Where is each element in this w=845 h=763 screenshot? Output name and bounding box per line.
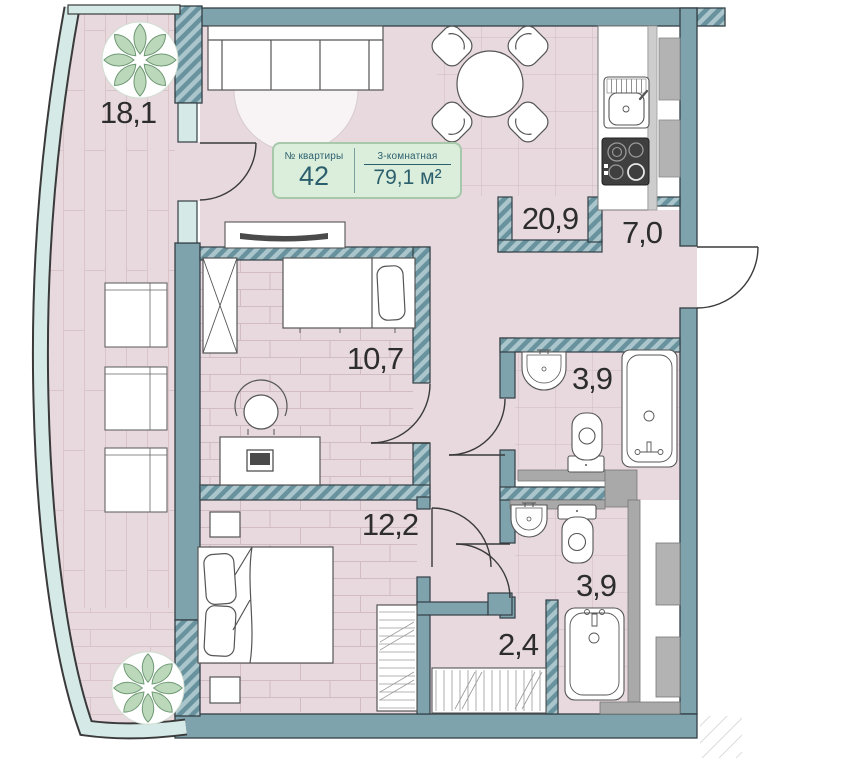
bathtub-icon (622, 350, 677, 467)
label-bedroom-small: 10,7 (347, 341, 403, 376)
label-bedroom-master: 12,2 (362, 507, 418, 542)
wall-right-lower (680, 308, 697, 714)
window-living-2 (178, 201, 197, 243)
wall-top (190, 8, 697, 26)
floor-plan-canvas: 18,1 20,9 7,0 10,7 3,9 12,2 3,9 2,4 № кв… (0, 0, 845, 763)
entrance-door (697, 247, 758, 308)
tv-stand (225, 222, 345, 248)
label-bathroom-upper: 3,9 (572, 361, 612, 396)
wall-left-solid (175, 243, 200, 620)
wall-closet-notch (488, 593, 512, 615)
grey-wall-bottom-strip (600, 702, 680, 714)
closet (432, 668, 546, 713)
apartment-number-cell: № квартиры 42 (274, 144, 354, 197)
label-bathroom-lower: 3,9 (576, 568, 616, 603)
wall-niche-bottom (498, 240, 602, 252)
fridge-cabinet-1 (659, 38, 680, 100)
grey-wall-bath-lower-right (628, 500, 640, 702)
window-living-1 (178, 103, 197, 142)
wall-bedroom-master-right-b (417, 577, 430, 714)
apartment-number-value: 42 (299, 162, 329, 190)
shaft-block-lower (656, 637, 680, 697)
double-bed (198, 547, 333, 663)
bathtub-icon (565, 608, 624, 700)
wall-right-upper (680, 8, 697, 246)
fridge-cabinet-2 (659, 120, 680, 177)
wall-bottom (175, 714, 697, 738)
dining-table (457, 51, 523, 117)
label-hallway: 7,0 (622, 215, 663, 250)
balcony-door-threshold (175, 142, 202, 201)
wall-top-corner (697, 8, 725, 26)
wall-bedroom-master-right-a (417, 497, 430, 509)
plant-icon (112, 652, 184, 724)
wall-left-pier-top (175, 6, 202, 103)
wall-bedroom-master-top (200, 485, 430, 500)
sofa (208, 26, 383, 90)
nightstand (210, 677, 240, 703)
apartment-type-label: 3-комнатная (364, 151, 451, 165)
stove-icon (602, 138, 649, 185)
wardrobe-x (203, 258, 237, 353)
balcony-box (105, 367, 167, 430)
label-living-kitchen: 20,9 (522, 201, 578, 236)
kitchen-sink-icon (604, 77, 649, 128)
pillow (204, 605, 237, 657)
label-closet: 2,4 (498, 627, 539, 662)
balcony-box (105, 283, 167, 347)
plant-icon (102, 22, 178, 98)
balcony-box (105, 448, 167, 512)
wardrobe-shelves (377, 605, 417, 711)
toilet-icon (558, 505, 596, 563)
toilet-icon (568, 413, 604, 472)
floor-plan-drawing: 18,1 20,9 7,0 10,7 3,9 12,2 3,9 2,4 (0, 0, 845, 763)
balcony-furniture (105, 283, 167, 512)
label-balcony: 18,1 (100, 95, 156, 130)
pillow (203, 553, 236, 605)
apartment-info-badge: № квартиры 42 3-комнатная 79,1 м² (272, 142, 462, 199)
wall-closet-right (546, 600, 558, 714)
washbasin-icon (522, 350, 566, 390)
single-bed (283, 258, 415, 333)
wall-bath-lower-top (500, 487, 610, 500)
desk (220, 437, 320, 485)
apartment-area-cell: 3-комнатная 79,1 м² (355, 144, 460, 197)
apartment-area-value: 79,1 м² (373, 167, 441, 189)
balcony-top-glass (68, 5, 180, 14)
closet-wardrobe (432, 668, 546, 713)
shaft-block-upper (656, 543, 680, 605)
wall-closet-top (417, 602, 488, 615)
washbasin-icon (511, 503, 547, 537)
nightstand (210, 512, 240, 537)
entrance-threshold (680, 246, 697, 308)
corner-deco-hatch (700, 716, 742, 758)
